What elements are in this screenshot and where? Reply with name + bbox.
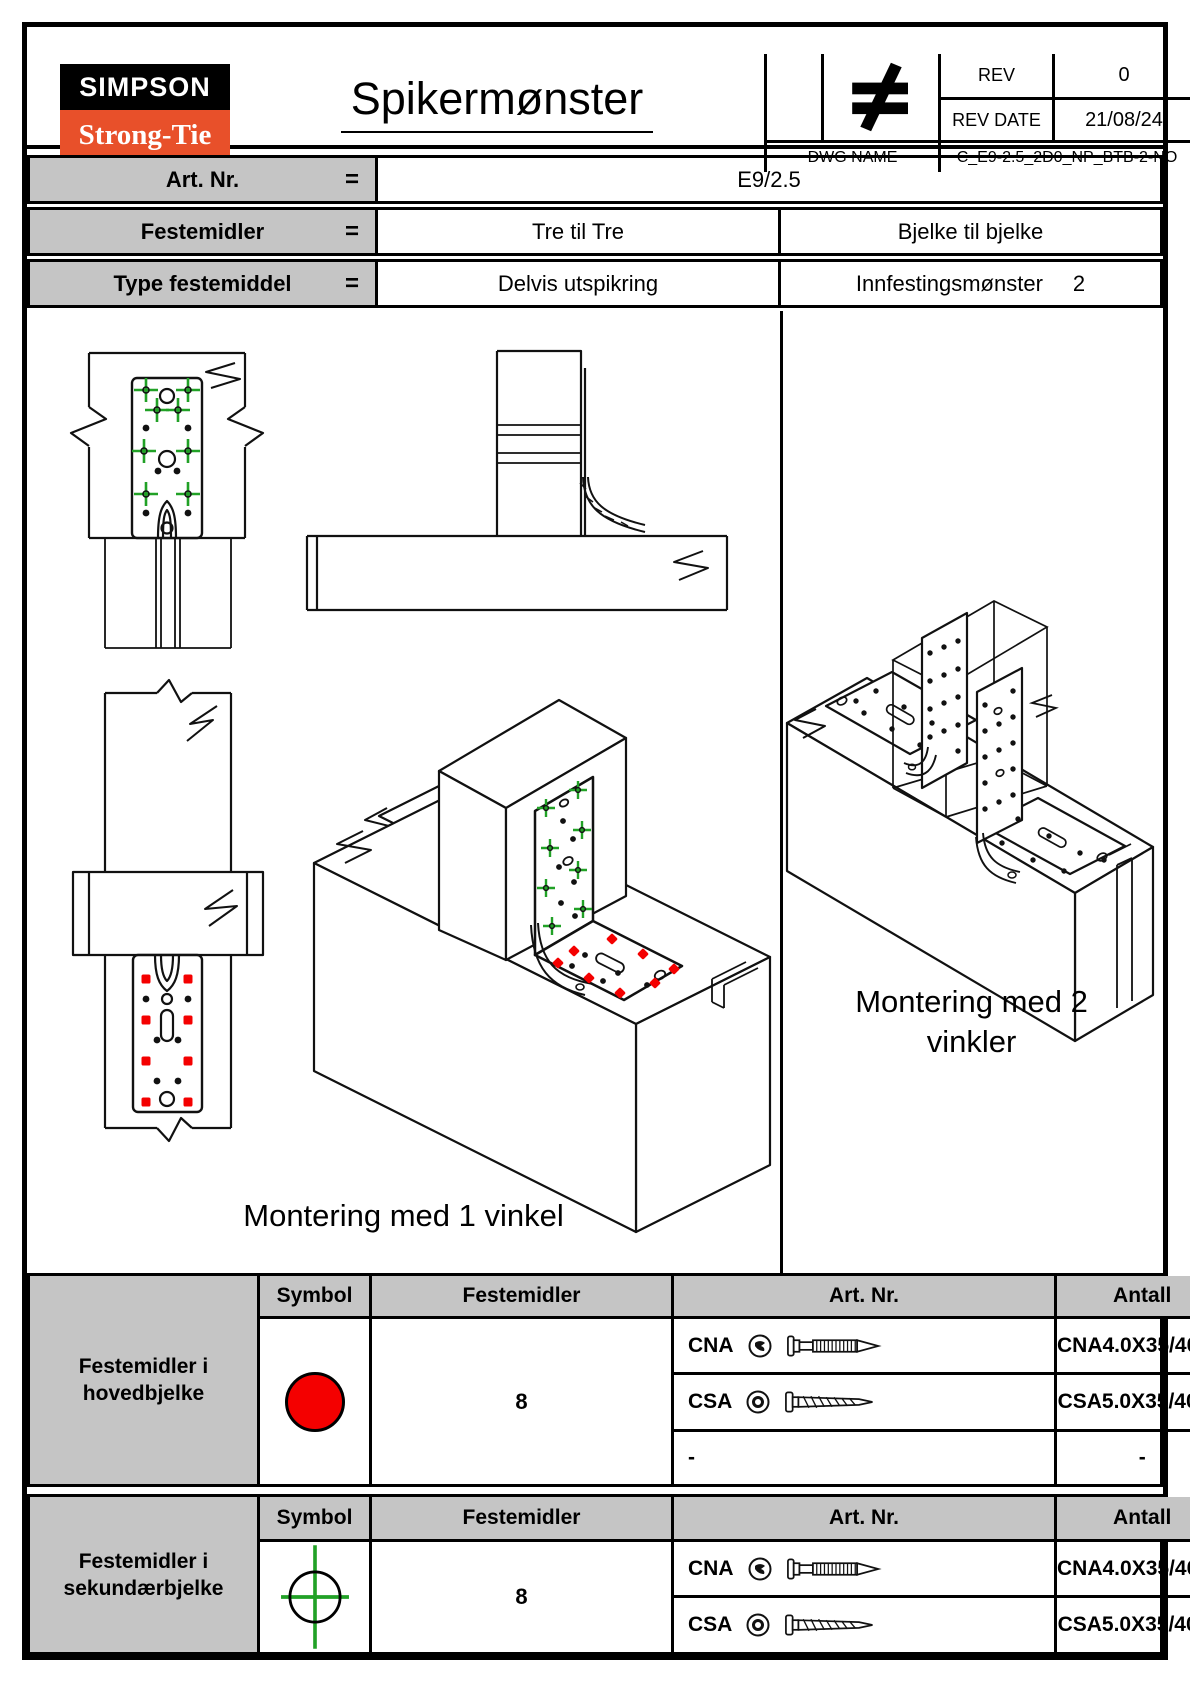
screw-icon: [784, 1610, 884, 1640]
nail-icon: [786, 1331, 886, 1361]
fastener-row-csa: CSA: [671, 1595, 1054, 1652]
simpson-strongtie-logo: SIMPSON Strong-Tie: [60, 64, 230, 161]
cna-nail-head-icon: [747, 1333, 773, 1359]
fastener-row-cna: CNA: [671, 1539, 1054, 1595]
artnr-cna: CNA4.0X35/40/50: [1054, 1539, 1190, 1595]
secondary-beam-antall-value: 8: [369, 1539, 671, 1652]
csa-screw-head-icon: [745, 1612, 771, 1638]
type-value-left: Delvis utspikring: [378, 262, 781, 305]
not-equal-icon: [824, 54, 938, 140]
page-title: Spikermønster: [242, 73, 752, 133]
caption-one-bracket: Montering med 1 vinkel: [27, 1196, 780, 1236]
festemidler-column-header: Festemidler: [369, 1276, 671, 1316]
festemidler-value-right: Bjelke til bjelke: [781, 210, 1160, 253]
equals-sign: =: [345, 166, 359, 194]
one-bracket-mounting-drawing: [27, 311, 780, 1273]
front-view-horizontal-flange: [73, 680, 263, 1141]
pattern-number: 2: [1073, 271, 1085, 297]
info-row-artnr: Art. Nr.= E9/2.5: [27, 155, 1163, 204]
artnr-csa: CSA5.0X35/40/50: [1054, 1595, 1190, 1652]
csa-screw-head-icon: [745, 1389, 771, 1415]
fastener-table-secondary-beam: Festemidler i sekundærbjelke Symbol Fest…: [27, 1494, 1163, 1655]
festemidler-label-cell: Festemidler=: [30, 210, 378, 253]
rev-date-value: 21/08/24: [1055, 100, 1190, 140]
sheet-header: SIMPSON Strong-Tie ® Spikermønster REV 0…: [27, 27, 1163, 149]
artnr-csa: CSA5.0X35/40/50: [1054, 1372, 1190, 1429]
rev-label: REV: [941, 54, 1052, 97]
symbol-column-header: Symbol: [257, 1276, 369, 1316]
rev-date-label: REV DATE: [941, 100, 1052, 140]
symbol-column-header: Symbol: [257, 1497, 369, 1539]
front-view-vertical-flange: [71, 353, 263, 648]
artnr-label-cell: Art. Nr.=: [30, 158, 378, 201]
red-dot-symbol-icon: [285, 1372, 345, 1432]
antall-column-header: Antall: [1054, 1497, 1190, 1539]
drawing-sheet: SIMPSON Strong-Tie ® Spikermønster REV 0…: [0, 0, 1190, 1682]
not-equal-icon-glyph: [848, 61, 914, 133]
fastener-row-cna: CNA: [671, 1316, 1054, 1372]
equals-sign: =: [345, 218, 359, 246]
artnr-dash: -: [1054, 1429, 1190, 1484]
group-label-sekundaerbjelke: Festemidler i sekundærbjelke: [30, 1497, 257, 1652]
caption-two-brackets: Montering med 2 vinkler: [783, 982, 1160, 1062]
festemidler-value-left: Tre til Tre: [378, 210, 781, 253]
cna-nail-head-icon: [747, 1556, 773, 1582]
artnr-cna: CNA4.0X35/40/50: [1054, 1316, 1190, 1372]
artnr-column-header: Art. Nr.: [671, 1276, 1054, 1316]
fastener-table-main-beam: Festemidler i hovedbjelke Symbol Festemi…: [27, 1273, 1163, 1487]
fastener-row-csa: CSA: [671, 1372, 1054, 1429]
festemidler-column-header: Festemidler: [369, 1497, 671, 1539]
fastener-row-dash: -: [671, 1429, 1054, 1484]
logo-strongtie: Strong-Tie: [60, 110, 230, 161]
logo-simpson: SIMPSON: [60, 64, 230, 110]
type-value-right: Innfestingsmønster2: [781, 262, 1160, 305]
artnr-column-header: Art. Nr.: [671, 1497, 1054, 1539]
secondary-beam-symbol-cell: [257, 1539, 369, 1652]
antall-column-header: Antall: [1054, 1276, 1190, 1316]
two-bracket-mounting-drawing: [780, 311, 1163, 1273]
nail-icon: [786, 1554, 886, 1584]
group-label-hovedbjelke: Festemidler i hovedbjelke: [30, 1276, 257, 1484]
main-beam-antall-value: 8: [369, 1316, 671, 1484]
screw-icon: [784, 1387, 884, 1417]
rev-value: 0: [1055, 54, 1190, 97]
artnr-value: E9/2.5: [378, 158, 1160, 201]
info-row-festemidler: Festemidler= Tre til Tre Bjelke til bjel…: [27, 207, 1163, 256]
green-crosshair-symbol-icon: [267, 1542, 363, 1652]
main-beam-symbol-cell: [257, 1316, 369, 1484]
info-row-type: Type festemiddel= Delvis utspikring Innf…: [27, 259, 1163, 308]
equals-sign: =: [345, 270, 359, 298]
iso-view-one-bracket: [314, 700, 770, 1232]
type-label-cell: Type festemiddel=: [30, 262, 378, 305]
side-view-t-joint: [307, 351, 727, 610]
